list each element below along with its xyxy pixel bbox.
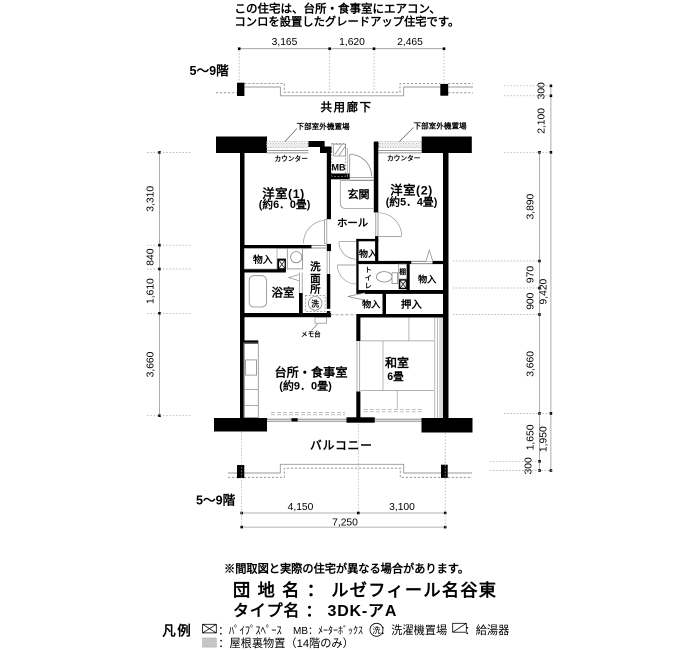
svg-text:物入: 物入	[418, 274, 437, 285]
svg-text:カウンター: カウンター	[275, 154, 309, 163]
svg-text:3,660: 3,660	[526, 351, 537, 377]
svg-text:3,310: 3,310	[146, 186, 157, 212]
svg-text:MB: MB	[332, 163, 346, 173]
svg-text:3,890: 3,890	[526, 193, 537, 219]
svg-text:：給湯器: ：給湯器	[465, 623, 510, 637]
svg-text:2,465: 2,465	[397, 37, 423, 48]
svg-text:1,610: 1,610	[146, 278, 157, 304]
svg-text:840: 840	[146, 248, 157, 265]
svg-text:3,165: 3,165	[272, 37, 298, 48]
svg-text:：ﾊﾟｲﾌﾟｽﾍﾟｰｽ: ：ﾊﾟｲﾌﾟｽﾍﾟｰｽ	[218, 625, 282, 637]
svg-text:970: 970	[526, 266, 537, 283]
svg-text:バルコニー: バルコニー	[310, 439, 373, 453]
svg-text:凡例: 凡例	[162, 623, 192, 639]
svg-text:下部室外機置場: 下部室外機置場	[297, 121, 351, 131]
svg-text:：屋根裏物置（14階のみ）: ：屋根裏物置（14階のみ）	[218, 636, 354, 650]
svg-text:和室: 和室	[384, 355, 409, 370]
svg-text:洋室(2): 洋室(2)	[390, 183, 432, 198]
svg-text:棚: 棚	[399, 267, 406, 276]
svg-text:300: 300	[537, 82, 548, 99]
svg-text:下部室外機置場: 下部室外機置場	[414, 120, 468, 130]
svg-text:所: 所	[310, 283, 321, 296]
svg-text:浴室: 浴室	[272, 286, 295, 300]
svg-text:：洗濯機置場: ：洗濯機置場	[380, 623, 447, 637]
svg-text:300: 300	[524, 457, 535, 474]
svg-text:この住宅は、台所・食事室にエアコン、: この住宅は、台所・食事室にエアコン、	[235, 2, 441, 16]
svg-text:共用廊下: 共用廊下	[321, 100, 373, 114]
svg-text:5～9階: 5～9階	[190, 63, 230, 78]
svg-text:物入: 物入	[362, 298, 381, 309]
svg-text:コンロを設置したグレードアップ住宅です。: コンロを設置したグレードアップ住宅です。	[235, 14, 460, 28]
svg-text:900: 900	[526, 292, 537, 309]
svg-text:※間取図と実際の住宅が異なる場合があります。: ※間取図と実際の住宅が異なる場合があります。	[224, 562, 469, 576]
svg-text:ホール: ホール	[337, 217, 369, 229]
svg-text:玄関: 玄関	[348, 187, 370, 201]
svg-text:7,250: 7,250	[332, 517, 358, 528]
svg-text:団 地 名 ： ルゼフィール名谷東: 団 地 名 ： ルゼフィール名谷東	[233, 580, 497, 600]
svg-text:ト: ト	[365, 266, 372, 274]
svg-text:4,150: 4,150	[288, 502, 314, 513]
svg-text:(約5．4畳): (約5．4畳)	[386, 195, 438, 209]
svg-text:1,950: 1,950	[539, 426, 550, 452]
svg-text:イ: イ	[365, 274, 372, 282]
svg-text:2,100: 2,100	[537, 108, 548, 134]
svg-text:カウンター: カウンター	[387, 153, 421, 162]
svg-text:(約6．0畳): (約6．0畳)	[259, 197, 311, 211]
svg-text:(約9．0畳): (約9．0畳)	[279, 378, 332, 392]
svg-text:レ: レ	[365, 282, 372, 290]
svg-text:3,660: 3,660	[146, 351, 157, 377]
svg-text:メモ台: メモ台	[301, 329, 321, 338]
svg-text:洗: 洗	[310, 260, 321, 273]
svg-text:6畳: 6畳	[387, 371, 404, 383]
svg-text:タイプ名 ： 3DK-アA: タイプ名 ： 3DK-アA	[233, 601, 397, 620]
svg-text:物入: 物入	[253, 253, 273, 266]
svg-text:物入: 物入	[359, 248, 377, 259]
svg-text:5～9階: 5～9階	[196, 493, 236, 508]
svg-text:1,650: 1,650	[526, 424, 537, 450]
svg-text:3,100: 3,100	[389, 502, 415, 513]
svg-text:台所・食事室: 台所・食事室	[274, 365, 347, 380]
svg-text:9,420: 9,420	[539, 278, 550, 304]
svg-text:押入: 押入	[401, 298, 422, 311]
svg-text:1,620: 1,620	[339, 37, 365, 48]
svg-text:洗: 洗	[311, 299, 319, 309]
svg-text:MB：ﾒｰﾀｰﾎﾞｯｸｽ: MB：ﾒｰﾀｰﾎﾞｯｸｽ	[293, 625, 363, 637]
